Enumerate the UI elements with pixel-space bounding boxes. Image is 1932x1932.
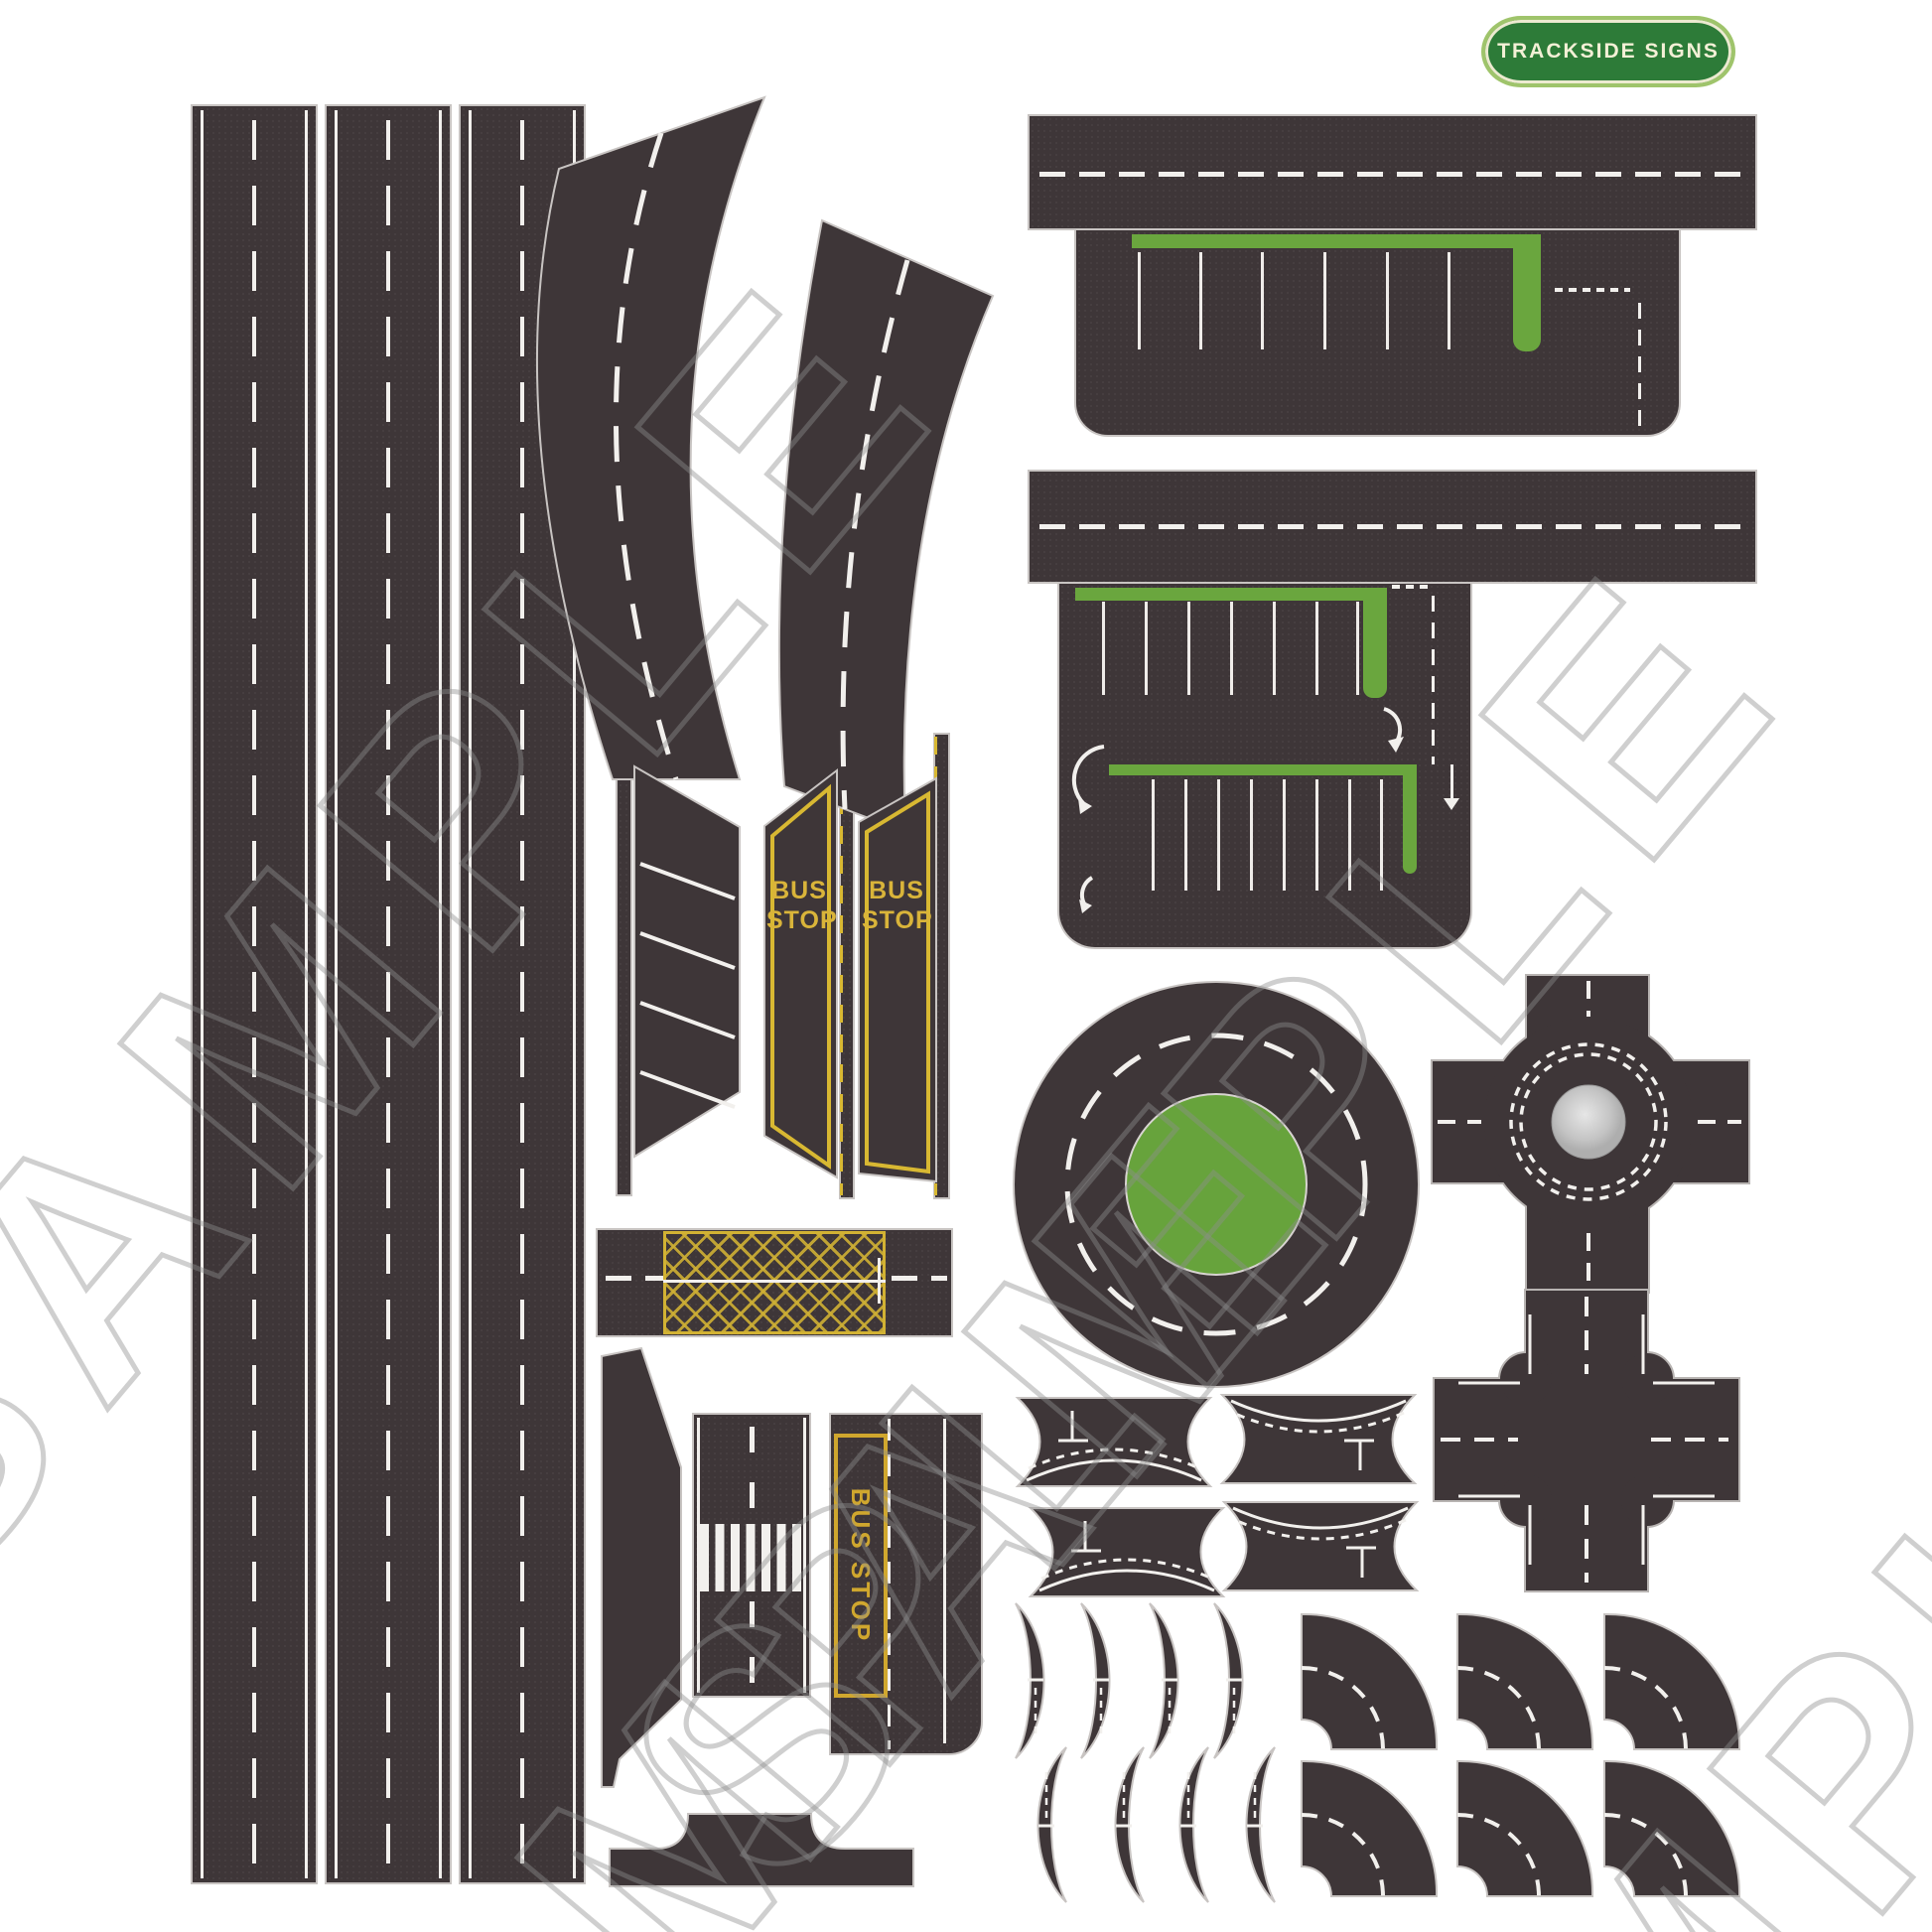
crossroads [1435,1291,1738,1590]
bus-stop-cage-1 [764,770,837,1177]
junction-flare-piece [1180,1747,1209,1902]
mini-roundabout-center [1552,1085,1625,1159]
t-filler-piece [610,1814,913,1886]
pinch-point-piece [1018,1398,1210,1486]
junction-flare-piece [1150,1603,1178,1758]
pinch-point-piece [1222,1395,1415,1483]
large-roundabout [1014,982,1419,1387]
curved-road-2 [779,220,993,832]
bus-stop-cage-2 [859,778,936,1181]
pinch-point-piece [1224,1502,1417,1590]
logo-text: TRACKSIDE SIGNS [1497,40,1720,64]
quarter-curve-piece [1457,1761,1592,1896]
bus-stop-label-2: BUSSTOP [862,876,931,935]
pinch-point-piece [1031,1508,1223,1596]
mini-roundabout [1433,976,1748,1292]
car-park-arrow-heads [1078,737,1404,913]
junction-flare-piece [1038,1747,1067,1902]
quarter-curve-piece [1302,1614,1437,1749]
road-sections-sheet: BUS STOP [0,0,1932,1932]
junction-flare-piece [1247,1747,1276,1902]
car-park-arrows [1074,709,1400,905]
shaped-pieces-layer [0,0,1932,1932]
bus-stop-label-1: BUSSTOP [766,876,832,935]
curved-road-1 [537,97,764,779]
quarter-curve-piece [1302,1761,1437,1896]
junction-flare-piece [1081,1603,1110,1758]
quarter-curve-piece [1457,1614,1592,1749]
quarter-curve-piece [1604,1614,1739,1749]
quarter-curve-piece [1604,1761,1739,1896]
roundabout-green-island [1126,1094,1307,1275]
junction-flare-piece [1214,1603,1243,1758]
layby-taper-piece [602,1348,681,1787]
junction-flare-piece [1116,1747,1145,1902]
junction-flare-piece [1016,1603,1044,1758]
trackside-signs-logo: TRACKSIDE SIGNS [1481,16,1735,87]
bus-layby-hatched [634,766,740,1157]
